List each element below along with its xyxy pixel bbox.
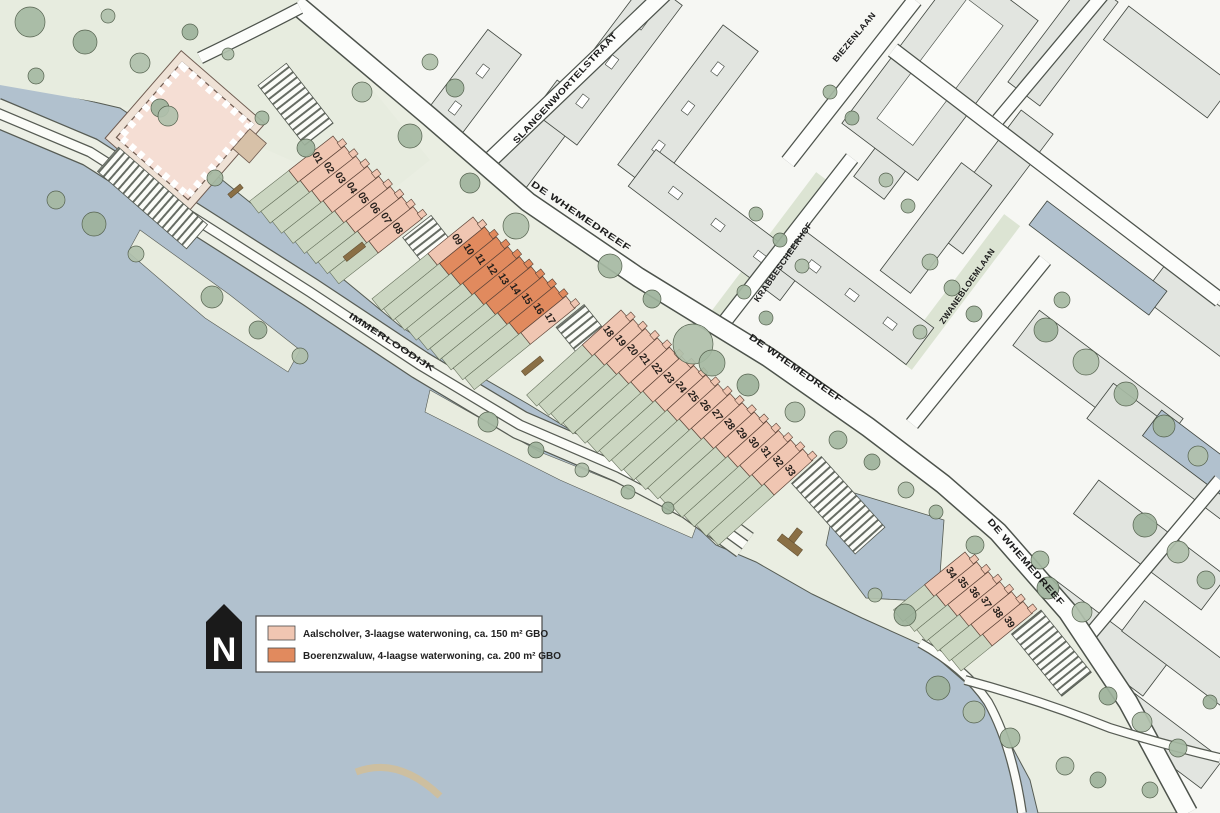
tree <box>966 306 982 322</box>
tree <box>598 254 622 278</box>
tree <box>868 588 882 602</box>
tree <box>292 348 308 364</box>
tree <box>913 325 927 339</box>
tree <box>28 68 44 84</box>
tree <box>845 111 859 125</box>
tree <box>662 502 674 514</box>
tree <box>130 53 150 73</box>
tree <box>1188 446 1208 466</box>
tree <box>901 199 915 213</box>
legend: Aalscholver, 3-laagse waterwoning, ca. 1… <box>256 616 561 672</box>
tree <box>879 173 893 187</box>
tree <box>1133 513 1157 537</box>
tree <box>1197 571 1215 589</box>
tree <box>128 246 144 262</box>
tree <box>297 139 315 157</box>
tree <box>15 7 45 37</box>
legend-swatch-aalscholver <box>268 626 295 640</box>
tree <box>1153 415 1175 437</box>
tree <box>922 254 938 270</box>
tree <box>795 259 809 273</box>
tree <box>1090 772 1106 788</box>
tree <box>460 173 480 193</box>
tree <box>478 412 498 432</box>
tree <box>422 54 438 70</box>
tree <box>929 505 943 519</box>
tree <box>575 463 589 477</box>
tree <box>643 290 661 308</box>
tree <box>47 191 65 209</box>
tree <box>926 676 950 700</box>
tree <box>621 485 635 499</box>
site-plan-map: 0102030405060708091011121314151617181920… <box>0 0 1220 813</box>
tree <box>398 124 422 148</box>
tree <box>182 24 198 40</box>
tree <box>73 30 97 54</box>
tree <box>503 213 529 239</box>
tree <box>255 111 269 125</box>
tree <box>749 207 763 221</box>
tree <box>737 374 759 396</box>
tree <box>759 311 773 325</box>
legend-label-aalscholver: Aalscholver, 3-laagse waterwoning, ca. 1… <box>303 629 548 640</box>
tree <box>352 82 372 102</box>
tree <box>101 9 115 23</box>
legend-box <box>256 616 542 672</box>
tree <box>737 285 751 299</box>
tree <box>1034 318 1058 342</box>
tree <box>1132 712 1152 732</box>
tree <box>823 85 837 99</box>
tree <box>82 212 106 236</box>
north-arrow-letter: N <box>212 631 237 669</box>
tree <box>446 79 464 97</box>
tree <box>249 321 267 339</box>
tree <box>1073 349 1099 375</box>
tree <box>773 233 787 247</box>
tree <box>785 402 805 422</box>
tree <box>1169 739 1187 757</box>
tree <box>963 701 985 723</box>
tree <box>829 431 847 449</box>
tree <box>1114 382 1138 406</box>
tree <box>201 286 223 308</box>
tree <box>898 482 914 498</box>
tree <box>1072 602 1092 622</box>
tree <box>1054 292 1070 308</box>
tree <box>1167 541 1189 563</box>
tree <box>1142 782 1158 798</box>
tree <box>207 170 223 186</box>
tree <box>1203 695 1217 709</box>
tree <box>1099 687 1117 705</box>
tree <box>1056 757 1074 775</box>
tree <box>1000 728 1020 748</box>
tree <box>222 48 234 60</box>
tree <box>699 350 725 376</box>
tree <box>528 442 544 458</box>
tree <box>894 604 916 626</box>
legend-label-boerenzwaluw: Boerenzwaluw, 4-laagse waterwoning, ca. … <box>303 651 561 662</box>
tree <box>966 536 984 554</box>
tree <box>158 106 178 126</box>
tree <box>864 454 880 470</box>
legend-swatch-boerenzwaluw <box>268 648 295 662</box>
